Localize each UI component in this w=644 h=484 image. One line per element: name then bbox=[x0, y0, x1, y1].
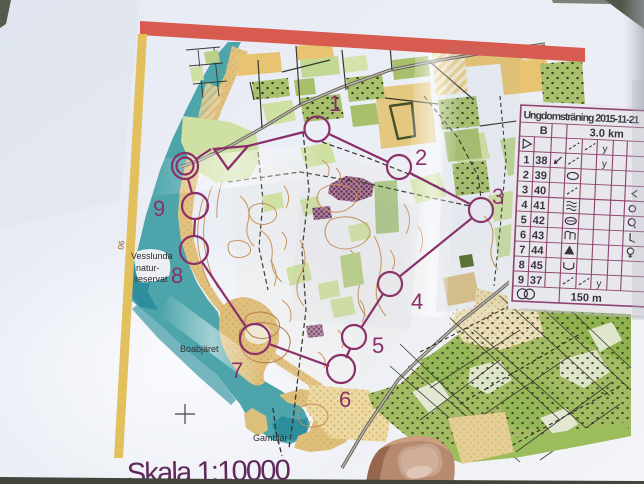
svg-text:37: 37 bbox=[530, 275, 543, 288]
svg-text:9: 9 bbox=[153, 196, 165, 221]
svg-text:3: 3 bbox=[522, 184, 529, 196]
svg-text:y: y bbox=[602, 144, 607, 155]
svg-text:1: 1 bbox=[523, 154, 530, 166]
svg-text:reservat: reservat bbox=[135, 274, 168, 284]
svg-text:B: B bbox=[540, 125, 549, 137]
svg-text:Gambjär: Gambjär bbox=[253, 433, 288, 443]
svg-text:5: 5 bbox=[520, 214, 527, 226]
svg-text:9: 9 bbox=[518, 274, 525, 286]
svg-text:natur-: natur- bbox=[136, 263, 160, 273]
svg-text:8: 8 bbox=[171, 263, 183, 288]
svg-text:7: 7 bbox=[519, 244, 526, 256]
svg-text:39: 39 bbox=[534, 170, 547, 183]
svg-text:5: 5 bbox=[372, 333, 384, 358]
svg-text:y: y bbox=[602, 159, 607, 170]
svg-text:42: 42 bbox=[532, 215, 545, 228]
svg-text:7: 7 bbox=[231, 358, 243, 383]
svg-text:1: 1 bbox=[329, 91, 341, 116]
svg-text:y: y bbox=[596, 279, 601, 290]
svg-text:44: 44 bbox=[531, 245, 545, 258]
svg-text:2: 2 bbox=[522, 169, 529, 181]
svg-text:40: 40 bbox=[534, 185, 547, 198]
svg-text:2: 2 bbox=[415, 145, 427, 170]
svg-text:8: 8 bbox=[518, 259, 525, 271]
svg-text:150 m: 150 m bbox=[570, 292, 602, 305]
svg-text:38: 38 bbox=[535, 155, 548, 168]
svg-text:45: 45 bbox=[530, 260, 543, 273]
svg-text:43: 43 bbox=[532, 230, 545, 243]
svg-text:6: 6 bbox=[339, 387, 351, 412]
svg-text:3.0 km: 3.0 km bbox=[589, 127, 624, 141]
svg-text:6: 6 bbox=[520, 229, 527, 241]
svg-text:Vesslunda: Vesslunda bbox=[131, 251, 173, 261]
svg-text:Boabjäret: Boabjäret bbox=[180, 344, 219, 354]
svg-text:41: 41 bbox=[533, 200, 546, 213]
